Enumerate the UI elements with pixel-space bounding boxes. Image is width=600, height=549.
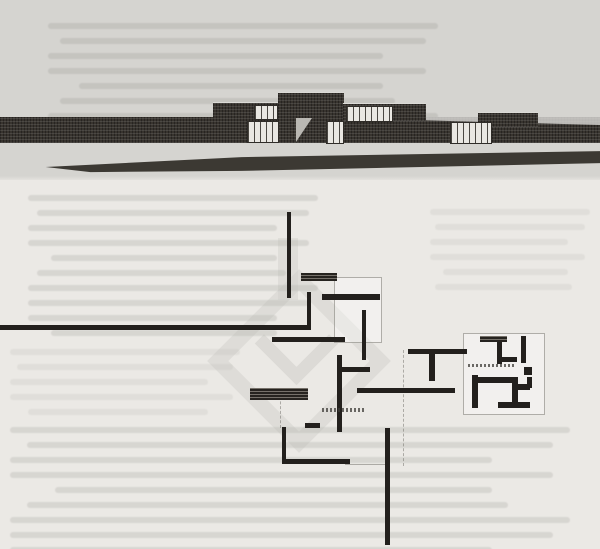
wall-segment xyxy=(322,294,380,300)
perspective-drawing xyxy=(0,0,600,180)
window-band xyxy=(247,121,279,143)
window-band xyxy=(346,106,393,122)
wall-segment xyxy=(521,336,526,363)
wall-segment xyxy=(337,355,342,432)
wall-segment xyxy=(498,402,530,408)
wall-segment-t-top xyxy=(408,349,467,354)
wall-segment xyxy=(524,367,532,375)
wall-segment xyxy=(512,384,530,390)
wall-segment xyxy=(357,388,455,393)
wall-segment xyxy=(301,273,337,281)
plan-room-outline xyxy=(334,277,382,343)
plan-label-illegible xyxy=(322,408,366,412)
hedge-band xyxy=(40,146,600,176)
wall-segment xyxy=(272,337,345,342)
ghost-text-texture xyxy=(430,200,590,299)
wall-segment-t-stem xyxy=(429,352,435,381)
wall-segment xyxy=(512,377,518,403)
wall-segment-l-horizontal xyxy=(282,459,350,464)
wall-segment-long-left xyxy=(0,325,310,330)
wall-segment xyxy=(362,310,366,360)
wall-segment xyxy=(342,367,370,372)
plan-label-illegible xyxy=(468,364,514,367)
wall-segment-long-bottom xyxy=(385,428,390,545)
wall-segment xyxy=(480,336,507,342)
right-wing-slab xyxy=(343,103,426,121)
wall-segment xyxy=(307,292,311,330)
wall-segment xyxy=(305,423,320,428)
left-wing-slab xyxy=(213,102,278,119)
wall-segment-vertical-top xyxy=(287,212,291,298)
window-band xyxy=(326,121,344,144)
wall-segment xyxy=(478,377,513,383)
window-band xyxy=(450,122,492,144)
scanned-book-figure: 知乎 @东联设计研究所 xyxy=(0,0,600,549)
wall-segment-l-vertical xyxy=(282,427,286,463)
guide-line xyxy=(403,350,404,466)
window-band xyxy=(254,105,278,120)
ghost-text-texture xyxy=(10,340,240,424)
wall-segment xyxy=(497,357,517,362)
floor-plan: 知乎 @东联设计研究所 xyxy=(0,180,600,549)
wall-segment-hatched xyxy=(250,388,308,400)
guide-line xyxy=(345,464,385,465)
